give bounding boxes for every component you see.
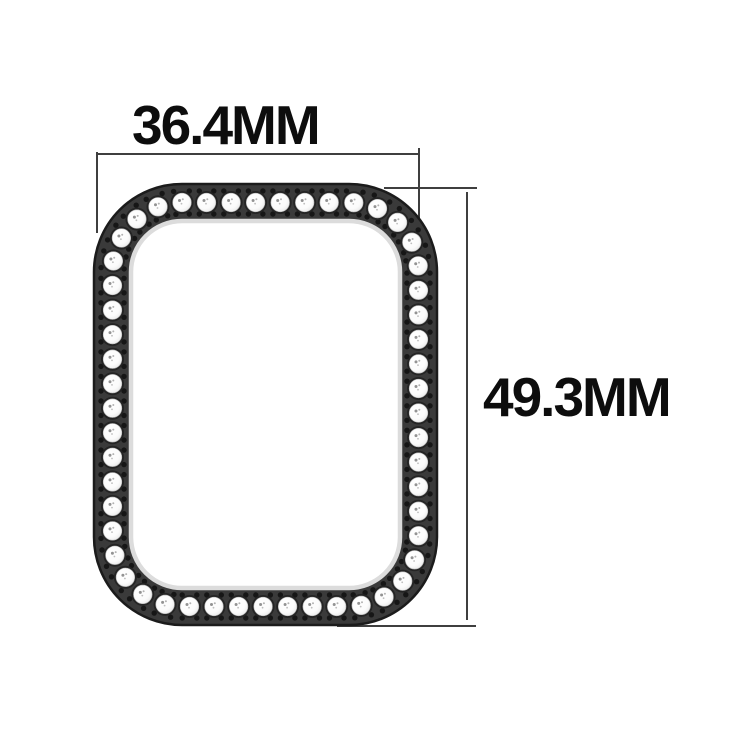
height-dimension-label: 49.3MM: [483, 370, 670, 425]
rhinestone: [409, 477, 428, 496]
rhinestone: [134, 585, 153, 604]
rhinestone: [320, 193, 339, 212]
rhinestone: [405, 551, 424, 570]
width-dimension-label: 36.4MM: [132, 98, 319, 153]
rhinestone: [222, 193, 241, 212]
rhinestone: [103, 350, 122, 369]
rhinestone: [103, 424, 122, 443]
rhinestone: [327, 597, 346, 616]
rhinestone: [409, 355, 428, 374]
rhinestone: [271, 193, 290, 212]
rhinestone: [409, 453, 428, 472]
rhinestone: [103, 325, 122, 344]
rhinestone: [229, 597, 248, 616]
rhinestone: [409, 428, 428, 447]
rhinestone: [197, 193, 216, 212]
rhinestone: [388, 213, 407, 232]
rhinestone: [409, 526, 428, 545]
rhinestone: [254, 597, 273, 616]
rhinestone: [103, 399, 122, 418]
rhinestone: [352, 596, 371, 615]
rhinestone: [403, 233, 422, 252]
rhinestone: [103, 276, 122, 295]
rhinestone: [112, 229, 131, 248]
rhinestone: [103, 374, 122, 393]
rhinestone: [409, 281, 428, 300]
rhinestone: [104, 252, 123, 271]
rhinestone: [149, 198, 168, 217]
rhinestone: [409, 306, 428, 325]
rhinestone: [303, 597, 322, 616]
rhinestone: [103, 301, 122, 320]
rhinestone: [278, 597, 297, 616]
rhinestone: [106, 546, 125, 565]
rhinestone: [103, 522, 122, 541]
rhinestone: [393, 572, 412, 591]
rhinestone: [295, 193, 314, 212]
rhinestone: [103, 448, 122, 467]
rhinestone: [180, 597, 199, 616]
rhinestone: [116, 568, 135, 587]
rhinestone: [409, 404, 428, 423]
rhinestone: [128, 210, 147, 229]
rhinestone: [409, 330, 428, 349]
rhinestone: [173, 193, 192, 212]
rhinestone: [156, 595, 175, 614]
rhinestone: [409, 502, 428, 521]
rhinestone: [409, 257, 428, 276]
rhinestone: [246, 193, 265, 212]
dimension-diagram: 36.4MM 49.3MM: [0, 0, 750, 750]
rhinestone: [409, 379, 428, 398]
rhinestone: [103, 473, 122, 492]
rhinestone: [375, 588, 394, 607]
rhinestone: [345, 193, 364, 212]
rhinestone: [368, 199, 387, 218]
rhinestone: [103, 497, 122, 516]
rhinestone: [205, 597, 224, 616]
